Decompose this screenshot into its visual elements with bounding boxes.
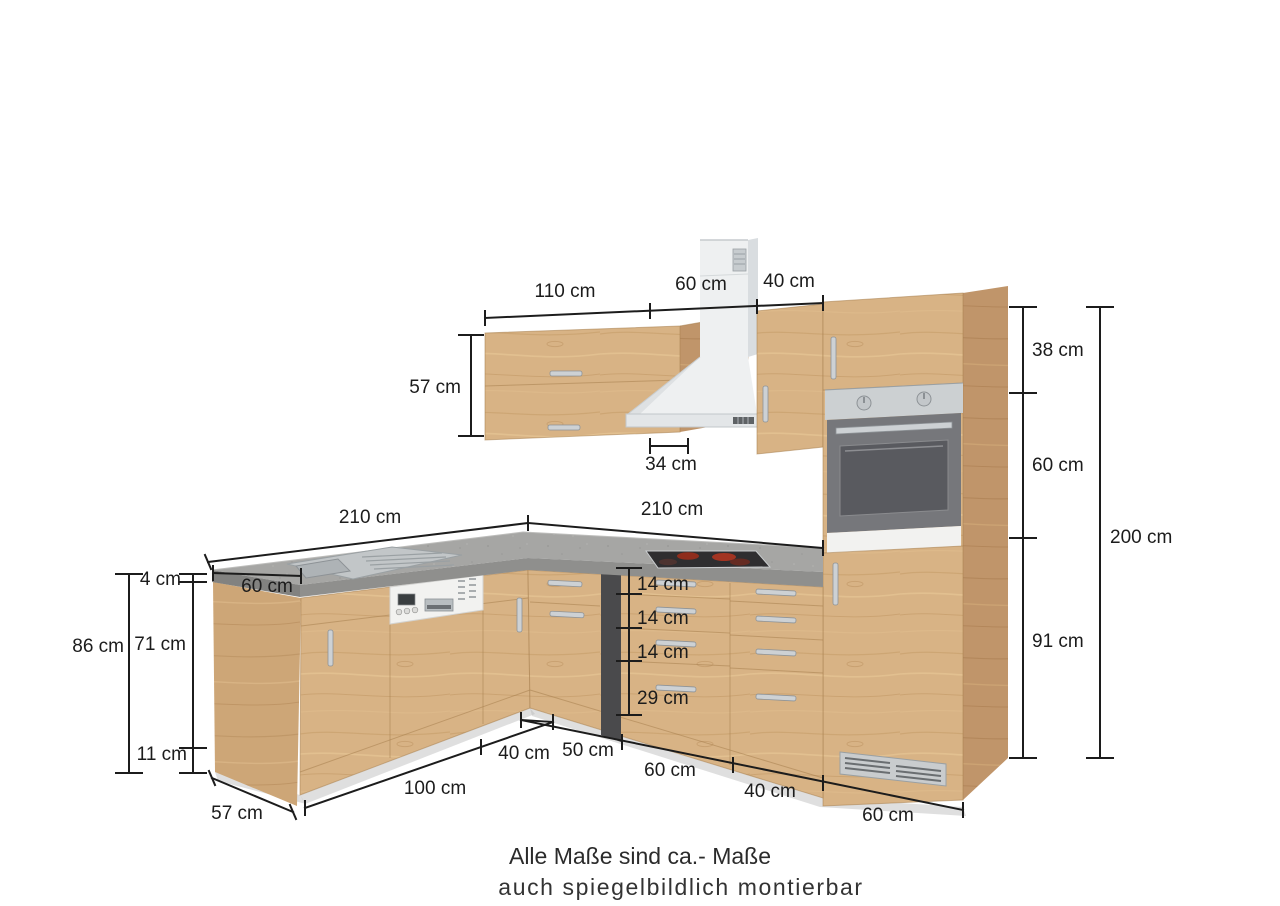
dim-label-29: 29 cm <box>637 688 689 709</box>
dim-label-14-1: 14 cm <box>637 574 689 595</box>
dim-label-71: 71 cm <box>134 634 186 655</box>
dishwasher-button <box>396 609 402 615</box>
dim-label-40-right: 40 cm <box>744 781 796 802</box>
dim-label-14-2: 14 cm <box>637 608 689 629</box>
oven-knob-left <box>857 396 871 410</box>
wall-cabinet-40-handle <box>763 386 768 422</box>
burner <box>730 559 750 566</box>
burner <box>659 559 677 565</box>
corner-left-door-handle <box>517 598 522 632</box>
wall-cabinet-110-upper-handle <box>550 371 582 376</box>
dishwasher-button <box>412 607 418 613</box>
dim-label-110: 110 cm <box>535 281 596 302</box>
wall-cabinet-110-lower-handle <box>548 425 580 430</box>
tall-cabinet <box>823 286 1008 806</box>
oven-knob-right <box>917 392 931 406</box>
hood-vent-grate-icon <box>733 249 746 271</box>
dishwasher-display <box>398 594 415 605</box>
kitchen-diagram-svg: 110 cm 60 cm 40 cm 57 cm 34 cm 38 cm 60 … <box>0 0 1280 906</box>
dim-label-34: 34 cm <box>645 454 697 475</box>
dim-label-100: 100 cm <box>404 778 466 799</box>
note-line1: Alle Maße sind ca.- Maße <box>509 843 771 869</box>
sink-cabinet-door-handle <box>328 630 333 666</box>
dim-label-200: 200 cm <box>1110 527 1172 548</box>
note-line2: auch spiegelbildlich montierbar <box>498 874 863 900</box>
end-panel <box>213 582 301 806</box>
dim-label-57-depth: 57 cm <box>211 803 263 824</box>
dim-label-60-hood: 60 cm <box>675 274 727 295</box>
cooktop <box>646 551 770 568</box>
corner-niche-gap <box>601 574 621 742</box>
dim-label-38: 38 cm <box>1032 340 1084 361</box>
burner <box>677 552 699 560</box>
oven <box>825 383 963 553</box>
dim-label-86: 86 cm <box>72 636 124 657</box>
dim-label-210-right: 210 cm <box>641 499 703 520</box>
dim-label-4: 4 cm <box>140 569 181 590</box>
dim-label-91: 91 cm <box>1032 631 1084 652</box>
dim-label-57-wall: 57 cm <box>409 377 461 398</box>
dim-label-50: 50 cm <box>562 740 614 761</box>
tall-cabinet-top-door-handle <box>831 337 836 379</box>
dim-label-40-left: 40 cm <box>498 743 550 764</box>
dim-label-11: 11 cm <box>137 744 187 765</box>
oven-window <box>840 440 948 516</box>
hood-control-strip <box>733 417 754 424</box>
dim-label-40-wall: 40 cm <box>763 271 815 292</box>
dishwasher-button <box>404 608 410 614</box>
dim-label-60-oven: 60 cm <box>1032 455 1084 476</box>
dim-label-60-depth: 60 cm <box>241 576 293 597</box>
dim-label-60-base: 60 cm <box>644 760 696 781</box>
dim-label-210-left: 210 cm <box>339 507 401 528</box>
wall-cabinet-40 <box>757 304 823 454</box>
kitchen-dimension-diagram: 110 cm 60 cm 40 cm 57 cm 34 cm 38 cm 60 … <box>0 0 1280 906</box>
tall-cabinet-lower-door-handle <box>833 563 838 605</box>
dim-label-60-tall: 60 cm <box>862 805 914 826</box>
dim-label-14-3: 14 cm <box>637 642 689 663</box>
